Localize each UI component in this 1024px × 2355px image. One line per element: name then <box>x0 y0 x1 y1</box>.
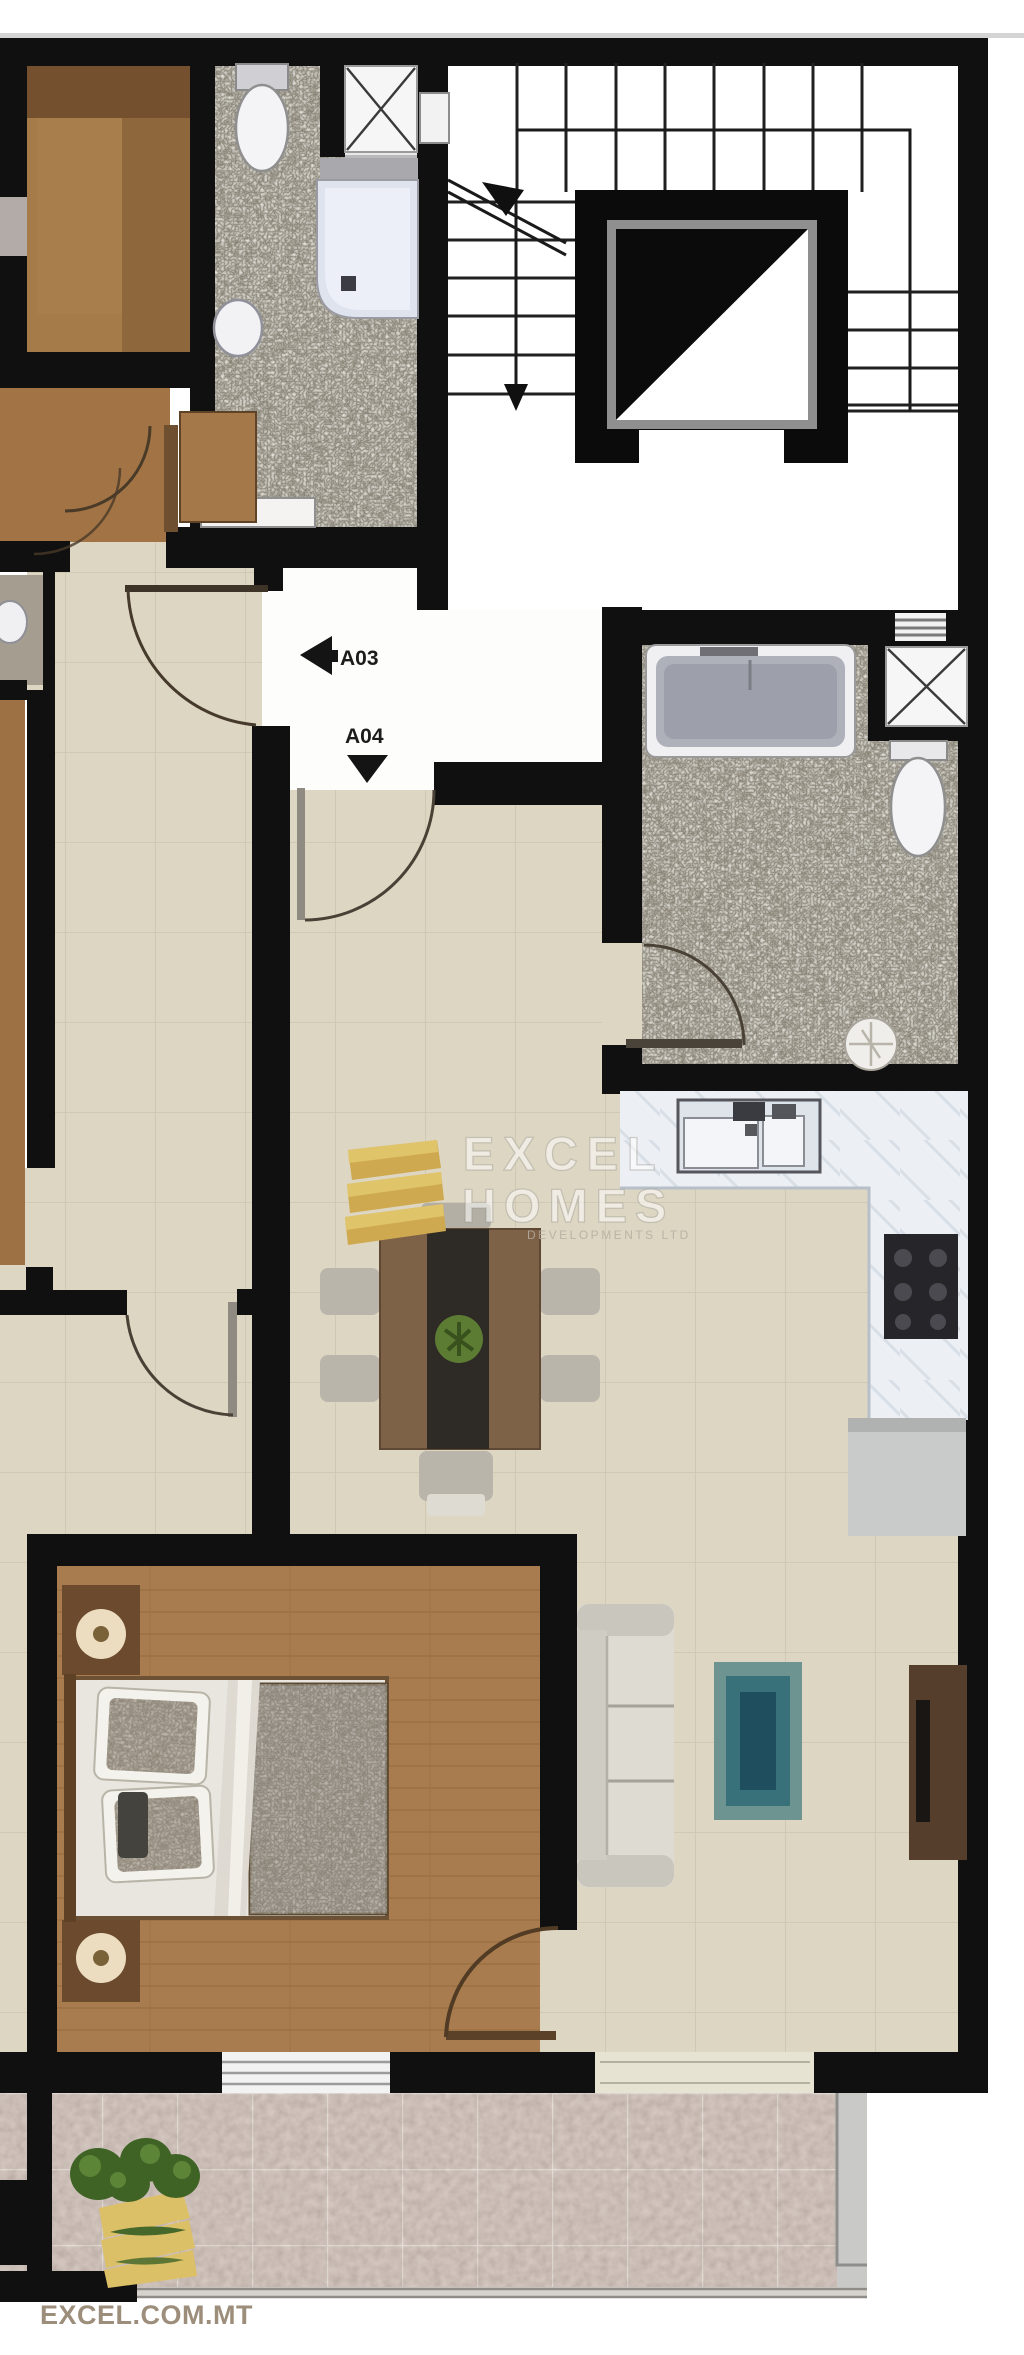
svg-text:HOMES: HOMES <box>462 1179 674 1232</box>
svg-text:DEVELOPMENTS LTD: DEVELOPMENTS LTD <box>527 1228 691 1242</box>
svg-text:A03: A03 <box>340 647 379 670</box>
svg-text:A04: A04 <box>345 725 384 748</box>
svg-text:EXCEL.COM.MT: EXCEL.COM.MT <box>40 2300 253 2330</box>
svg-text:EXCEL: EXCEL <box>463 1127 665 1180</box>
